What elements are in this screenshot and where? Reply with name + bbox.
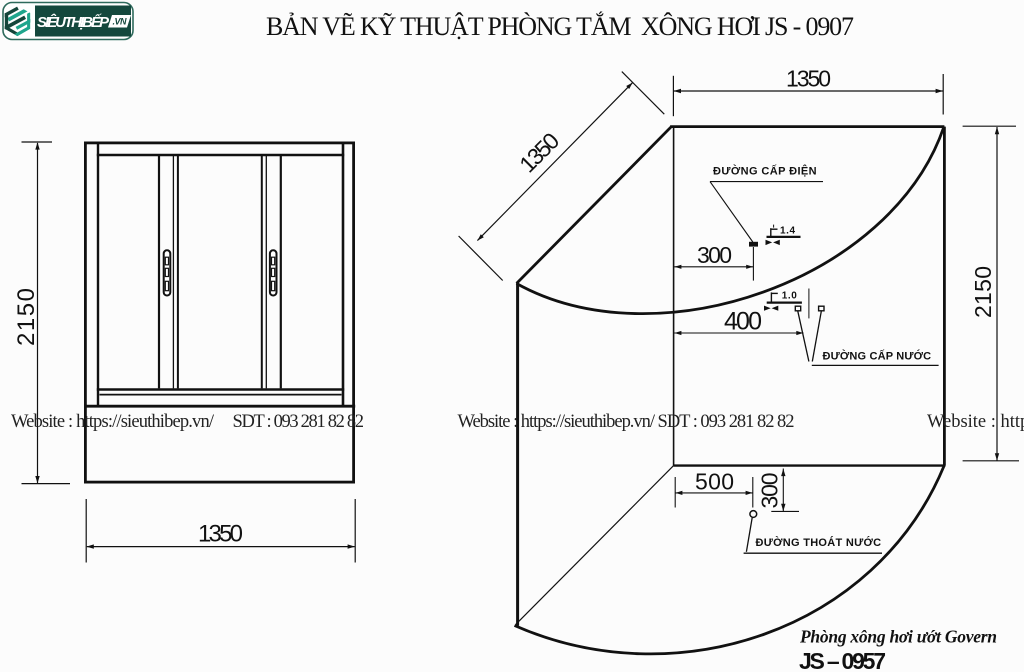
svg-text:SDT : 093 281 82 82: SDT : 093 281 82 82 xyxy=(233,412,365,432)
svg-text:2150: 2150 xyxy=(13,288,40,346)
svg-text:300: 300 xyxy=(757,473,783,509)
svg-text:BẢN VẼ KỸ THUẬT PHÒNG TẮM XÔN: BẢN VẼ KỸ THUẬT PHÒNG TẮM XÔNG HƠI JS - … xyxy=(266,12,854,41)
svg-text:JS – 0957: JS – 0957 xyxy=(799,648,886,672)
svg-text:400: 400 xyxy=(724,308,762,336)
svg-text:1350: 1350 xyxy=(198,521,243,548)
svg-text:Website : https://sieuthibep.v: Website : https://sieuthibep.vn/ xyxy=(11,412,215,432)
svg-text:Phòng xông hơi ướt Govern: Phòng xông hơi ướt Govern xyxy=(799,627,997,647)
svg-text:1350: 1350 xyxy=(786,66,831,92)
svg-text:2150: 2150 xyxy=(970,266,996,318)
svg-text:ĐƯỜNG CẤP NƯỚC: ĐƯỜNG CẤP NƯỚC xyxy=(823,350,932,363)
svg-text:.VN: .VN xyxy=(113,17,128,27)
svg-text:1.0: 1.0 xyxy=(782,291,798,302)
svg-text:300: 300 xyxy=(697,242,732,268)
svg-text:Website : https://sieuthibep.v: Website : https://sieuthibep.vn/ xyxy=(927,412,1024,432)
svg-text:1.4: 1.4 xyxy=(780,226,796,237)
svg-text:SIÊUTHỊBẾP: SIÊUTHỊBẾP xyxy=(37,13,110,31)
svg-text:500: 500 xyxy=(695,469,734,495)
svg-text:ĐƯỜNG CẤP ĐIỆN: ĐƯỜNG CẤP ĐIỆN xyxy=(713,165,817,178)
svg-text:ĐƯỜNG THOÁT NƯỚC: ĐƯỜNG THOÁT NƯỚC xyxy=(756,536,882,549)
svg-text:Website : https://sieuthibep.v: Website : https://sieuthibep.vn/ SDT : 0… xyxy=(458,412,795,432)
